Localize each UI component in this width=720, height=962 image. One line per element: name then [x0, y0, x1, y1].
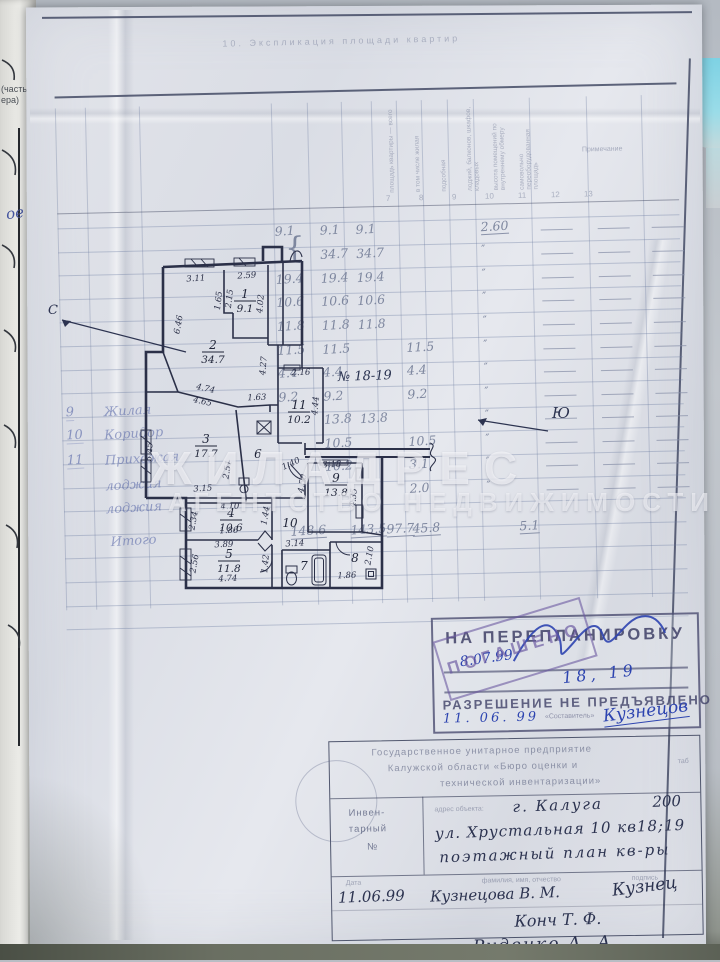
date-handwriting: 11.06.99: [338, 886, 405, 906]
room-area: 11.8: [217, 563, 241, 575]
date-column-label: Дата: [346, 880, 362, 887]
dimension-label: 6.46: [172, 314, 185, 335]
vent-shaft-icon: [366, 569, 376, 579]
north-label: С: [48, 303, 58, 318]
south-arrow-head: [478, 418, 487, 426]
executor-signature: Кузнец: [611, 873, 678, 901]
room-number: 10: [282, 516, 298, 530]
executor-handwriting: Кузнецова В. М.: [430, 883, 560, 906]
org-tab-note: таб: [678, 758, 689, 765]
dimension-label: 4.02: [255, 294, 267, 315]
dimension-label: 2.16: [290, 368, 311, 379]
inventory-label-1: Инвен-: [348, 807, 385, 819]
room-number: 11: [291, 398, 306, 412]
watermark-agency-subtitle: АГЕНТСТВО НЕДВИЖИМОСТИ: [168, 487, 720, 518]
inventory-number-handwriting: 200: [652, 792, 681, 811]
room-number: 7: [300, 559, 308, 573]
dimension-label: 4.27: [258, 355, 270, 376]
north-arrow-line: [62, 320, 186, 352]
toilet-icon: [286, 566, 297, 585]
dimension-label: 4.65: [191, 395, 213, 409]
room-number: 2: [208, 338, 217, 352]
dimension-label: 3.11: [186, 273, 206, 284]
north-arrow-head: [62, 320, 71, 327]
dimension-label: 2.59: [236, 270, 257, 281]
stamp-date-2: 11. 06. 99: [443, 710, 539, 727]
title-block-divider: [422, 797, 425, 875]
apartment-note-handwriting: № 18-19: [337, 368, 392, 385]
dimension-label: 3.14: [285, 539, 304, 550]
dimension-label: 4.74: [217, 574, 237, 585]
bathtub-icon: [312, 555, 326, 585]
dimension-label: 4.74: [194, 382, 216, 396]
vent-shaft-icon: [257, 421, 271, 434]
south-label: Ю: [551, 404, 570, 422]
room-area: 10.6: [219, 522, 243, 534]
org-line-2: Калужской области «Бюро оценки и: [388, 760, 579, 774]
room-area: 10.2: [287, 414, 311, 426]
address-hint: адрес объекта:: [434, 806, 483, 814]
room-number: 8: [351, 551, 359, 565]
dimension-label: 2.56: [188, 553, 201, 575]
title-block: Государственное унитарное предприятие Ка…: [328, 735, 703, 941]
org-line-3: технической инвентаризации»: [440, 776, 601, 790]
room-area: 9.1: [237, 303, 254, 315]
org-line-1: Государственное унитарное предприятие: [371, 744, 592, 759]
compass-south: Ю: [478, 404, 570, 431]
south-arrow-line: [478, 420, 548, 431]
doc-type-handwriting: поэтажный план кв-ры: [439, 840, 671, 866]
plan-break-lines: [290, 251, 436, 471]
second-name-handwriting: Конч Т. Ф.: [514, 909, 601, 931]
inventory-label-3: №: [367, 841, 378, 852]
dimension-label: 2.15: [224, 289, 236, 310]
table-surface: [0, 944, 720, 960]
dimension-label: 2.10: [363, 545, 376, 567]
room-number: 5: [225, 547, 233, 561]
stamp-small-print: «Составитель»: [545, 712, 595, 720]
compass-north: С: [48, 303, 186, 352]
room-area: 34.7: [201, 354, 225, 366]
inventory-label-2: тарный: [349, 823, 387, 835]
address-handwriting: ул. Хрустальная 10 кв18;19: [435, 816, 686, 843]
dimension-label: 4.44: [310, 396, 322, 417]
dimension-label: 1.42: [260, 554, 272, 574]
dimension-label: 1.86: [337, 571, 357, 582]
city-handwriting: г. Калуга: [512, 795, 603, 816]
dimension-label: 1.63: [247, 393, 266, 404]
room-number: 1: [241, 287, 249, 301]
